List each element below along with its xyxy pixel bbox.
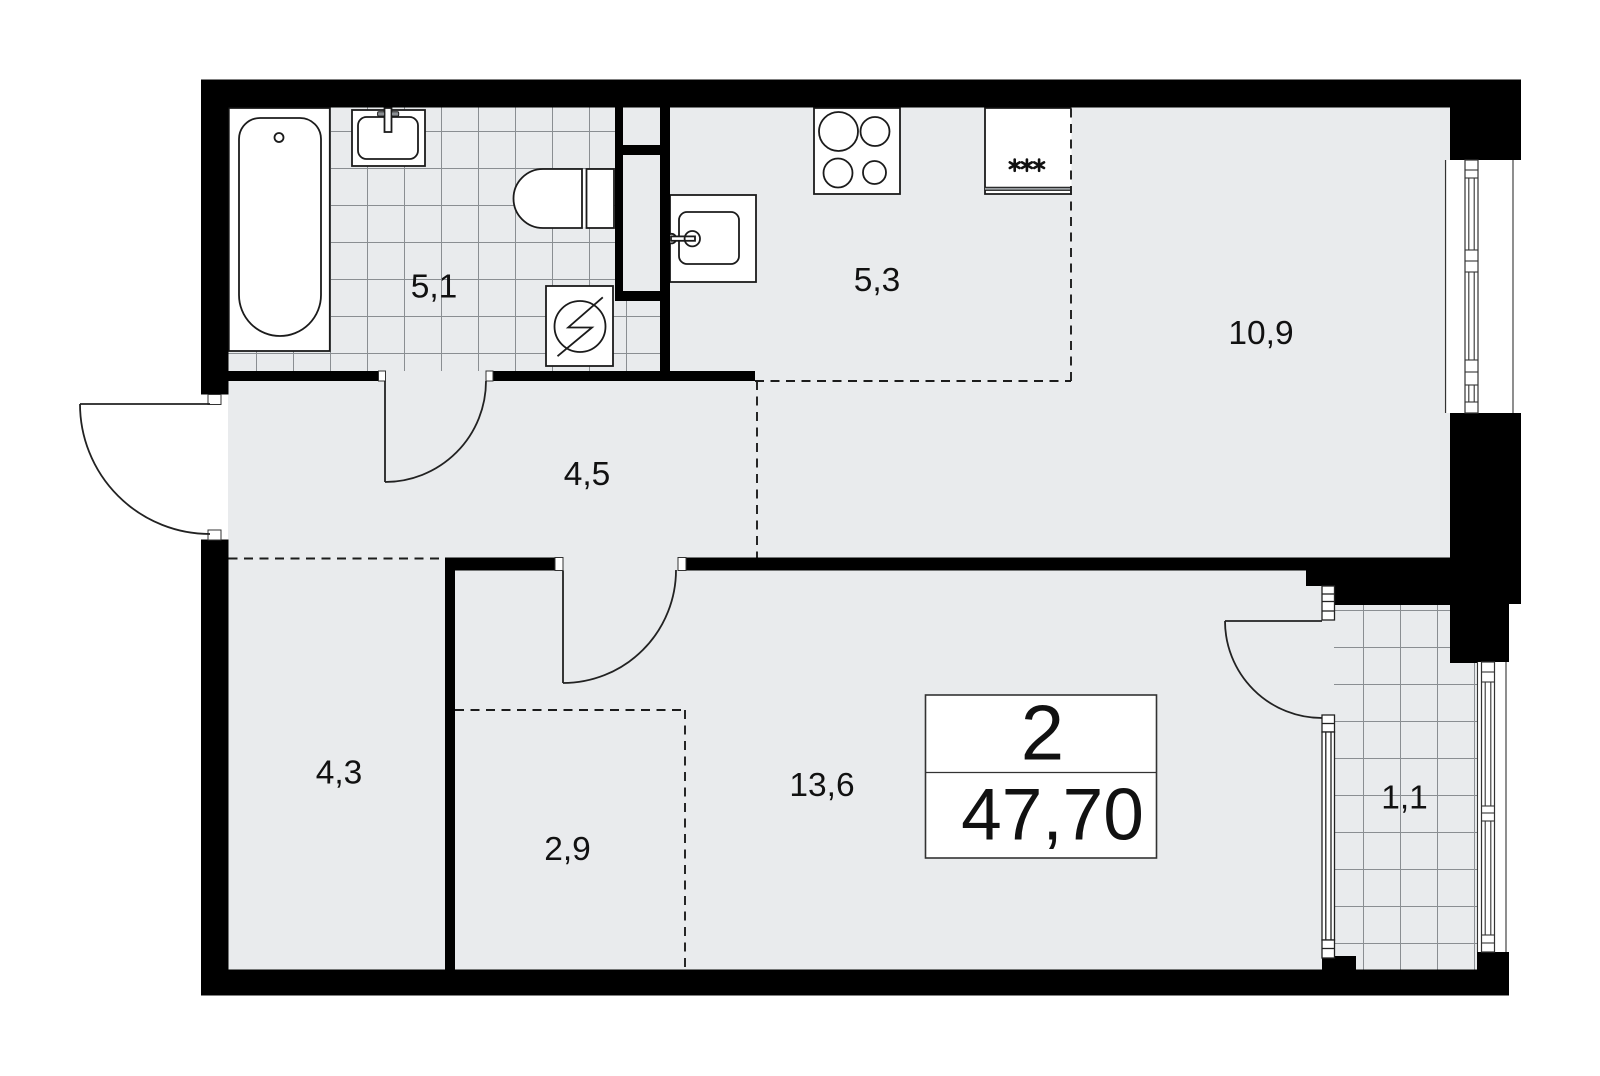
svg-text:2,9: 2,9 [544,831,591,868]
svg-text:47,70: 47,70 [961,775,1144,856]
svg-text:10,9: 10,9 [1228,315,1293,352]
svg-text:1,1: 1,1 [1381,780,1428,817]
svg-text:4,5: 4,5 [564,456,611,493]
svg-text:4,3: 4,3 [316,755,363,792]
svg-text:2: 2 [1021,689,1064,777]
svg-text:5,3: 5,3 [854,262,901,299]
svg-text:5,1: 5,1 [411,269,458,306]
svg-text:13,6: 13,6 [789,767,854,804]
